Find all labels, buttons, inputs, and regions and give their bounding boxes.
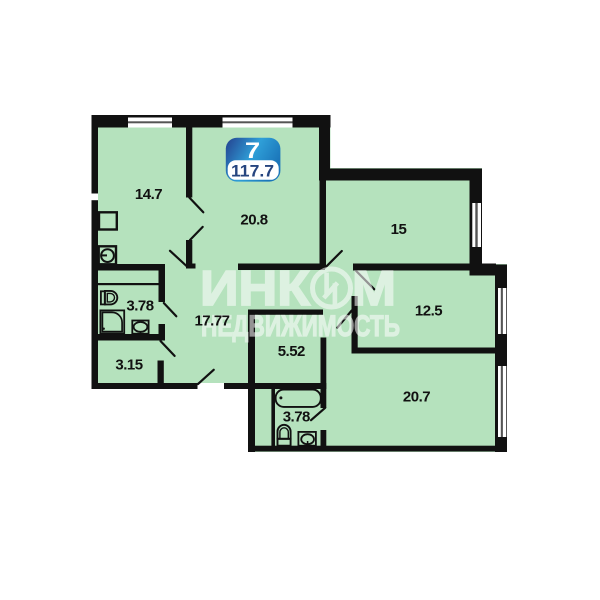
svg-text:7: 7 xyxy=(245,139,260,164)
svg-text:117.7: 117.7 xyxy=(231,161,274,180)
svg-text:12.5: 12.5 xyxy=(415,302,442,319)
svg-text:НЕДВИЖИМОСТЬ: НЕДВИЖИМОСТЬ xyxy=(201,310,400,343)
svg-text:17.77: 17.77 xyxy=(194,313,229,330)
svg-text:20.7: 20.7 xyxy=(403,388,430,405)
svg-text:14.7: 14.7 xyxy=(135,186,162,203)
svg-text:М: М xyxy=(352,262,396,316)
svg-text:3.78: 3.78 xyxy=(126,298,153,315)
svg-text:ИНК: ИНК xyxy=(200,262,310,316)
svg-text:3.15: 3.15 xyxy=(115,357,142,374)
svg-text:3.78: 3.78 xyxy=(283,409,310,426)
svg-text:20.8: 20.8 xyxy=(240,211,267,228)
svg-text:15: 15 xyxy=(391,221,407,238)
svg-text:5.52: 5.52 xyxy=(278,343,305,360)
